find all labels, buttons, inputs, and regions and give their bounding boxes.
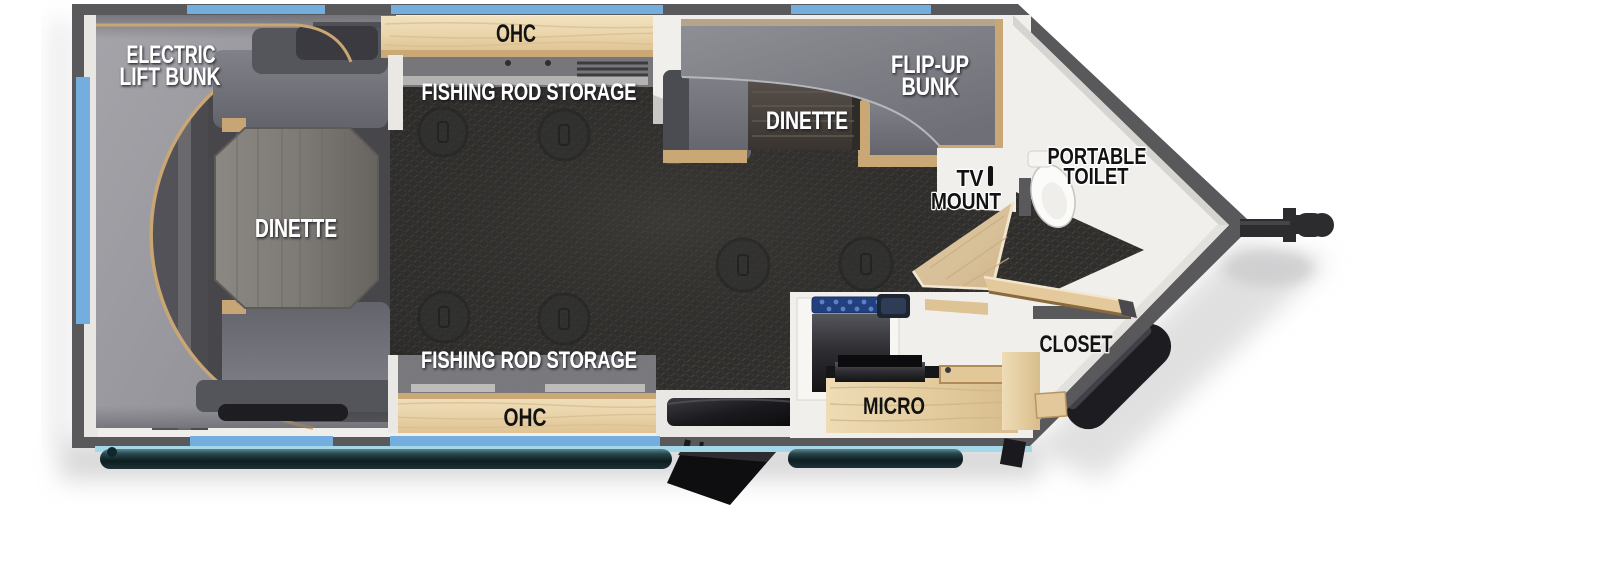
svg-text:OHC: OHC [496,20,536,48]
svg-text:CLOSET: CLOSET [1040,331,1113,358]
svg-text:LIFT BUNK: LIFT BUNK [120,63,221,91]
svg-text:TOILET: TOILET [1064,163,1129,189]
svg-text:DINETTE: DINETTE [766,107,848,135]
svg-text:MOUNT: MOUNT [931,188,1001,214]
svg-text:BUNK: BUNK [902,73,959,101]
svg-text:FISHING ROD STORAGE: FISHING ROD STORAGE [421,347,637,374]
svg-text:DINETTE: DINETTE [255,213,337,243]
svg-text:FISHING ROD STORAGE: FISHING ROD STORAGE [422,79,637,106]
svg-text:OHC: OHC [504,404,547,432]
svg-text:MICRO: MICRO [863,393,925,420]
